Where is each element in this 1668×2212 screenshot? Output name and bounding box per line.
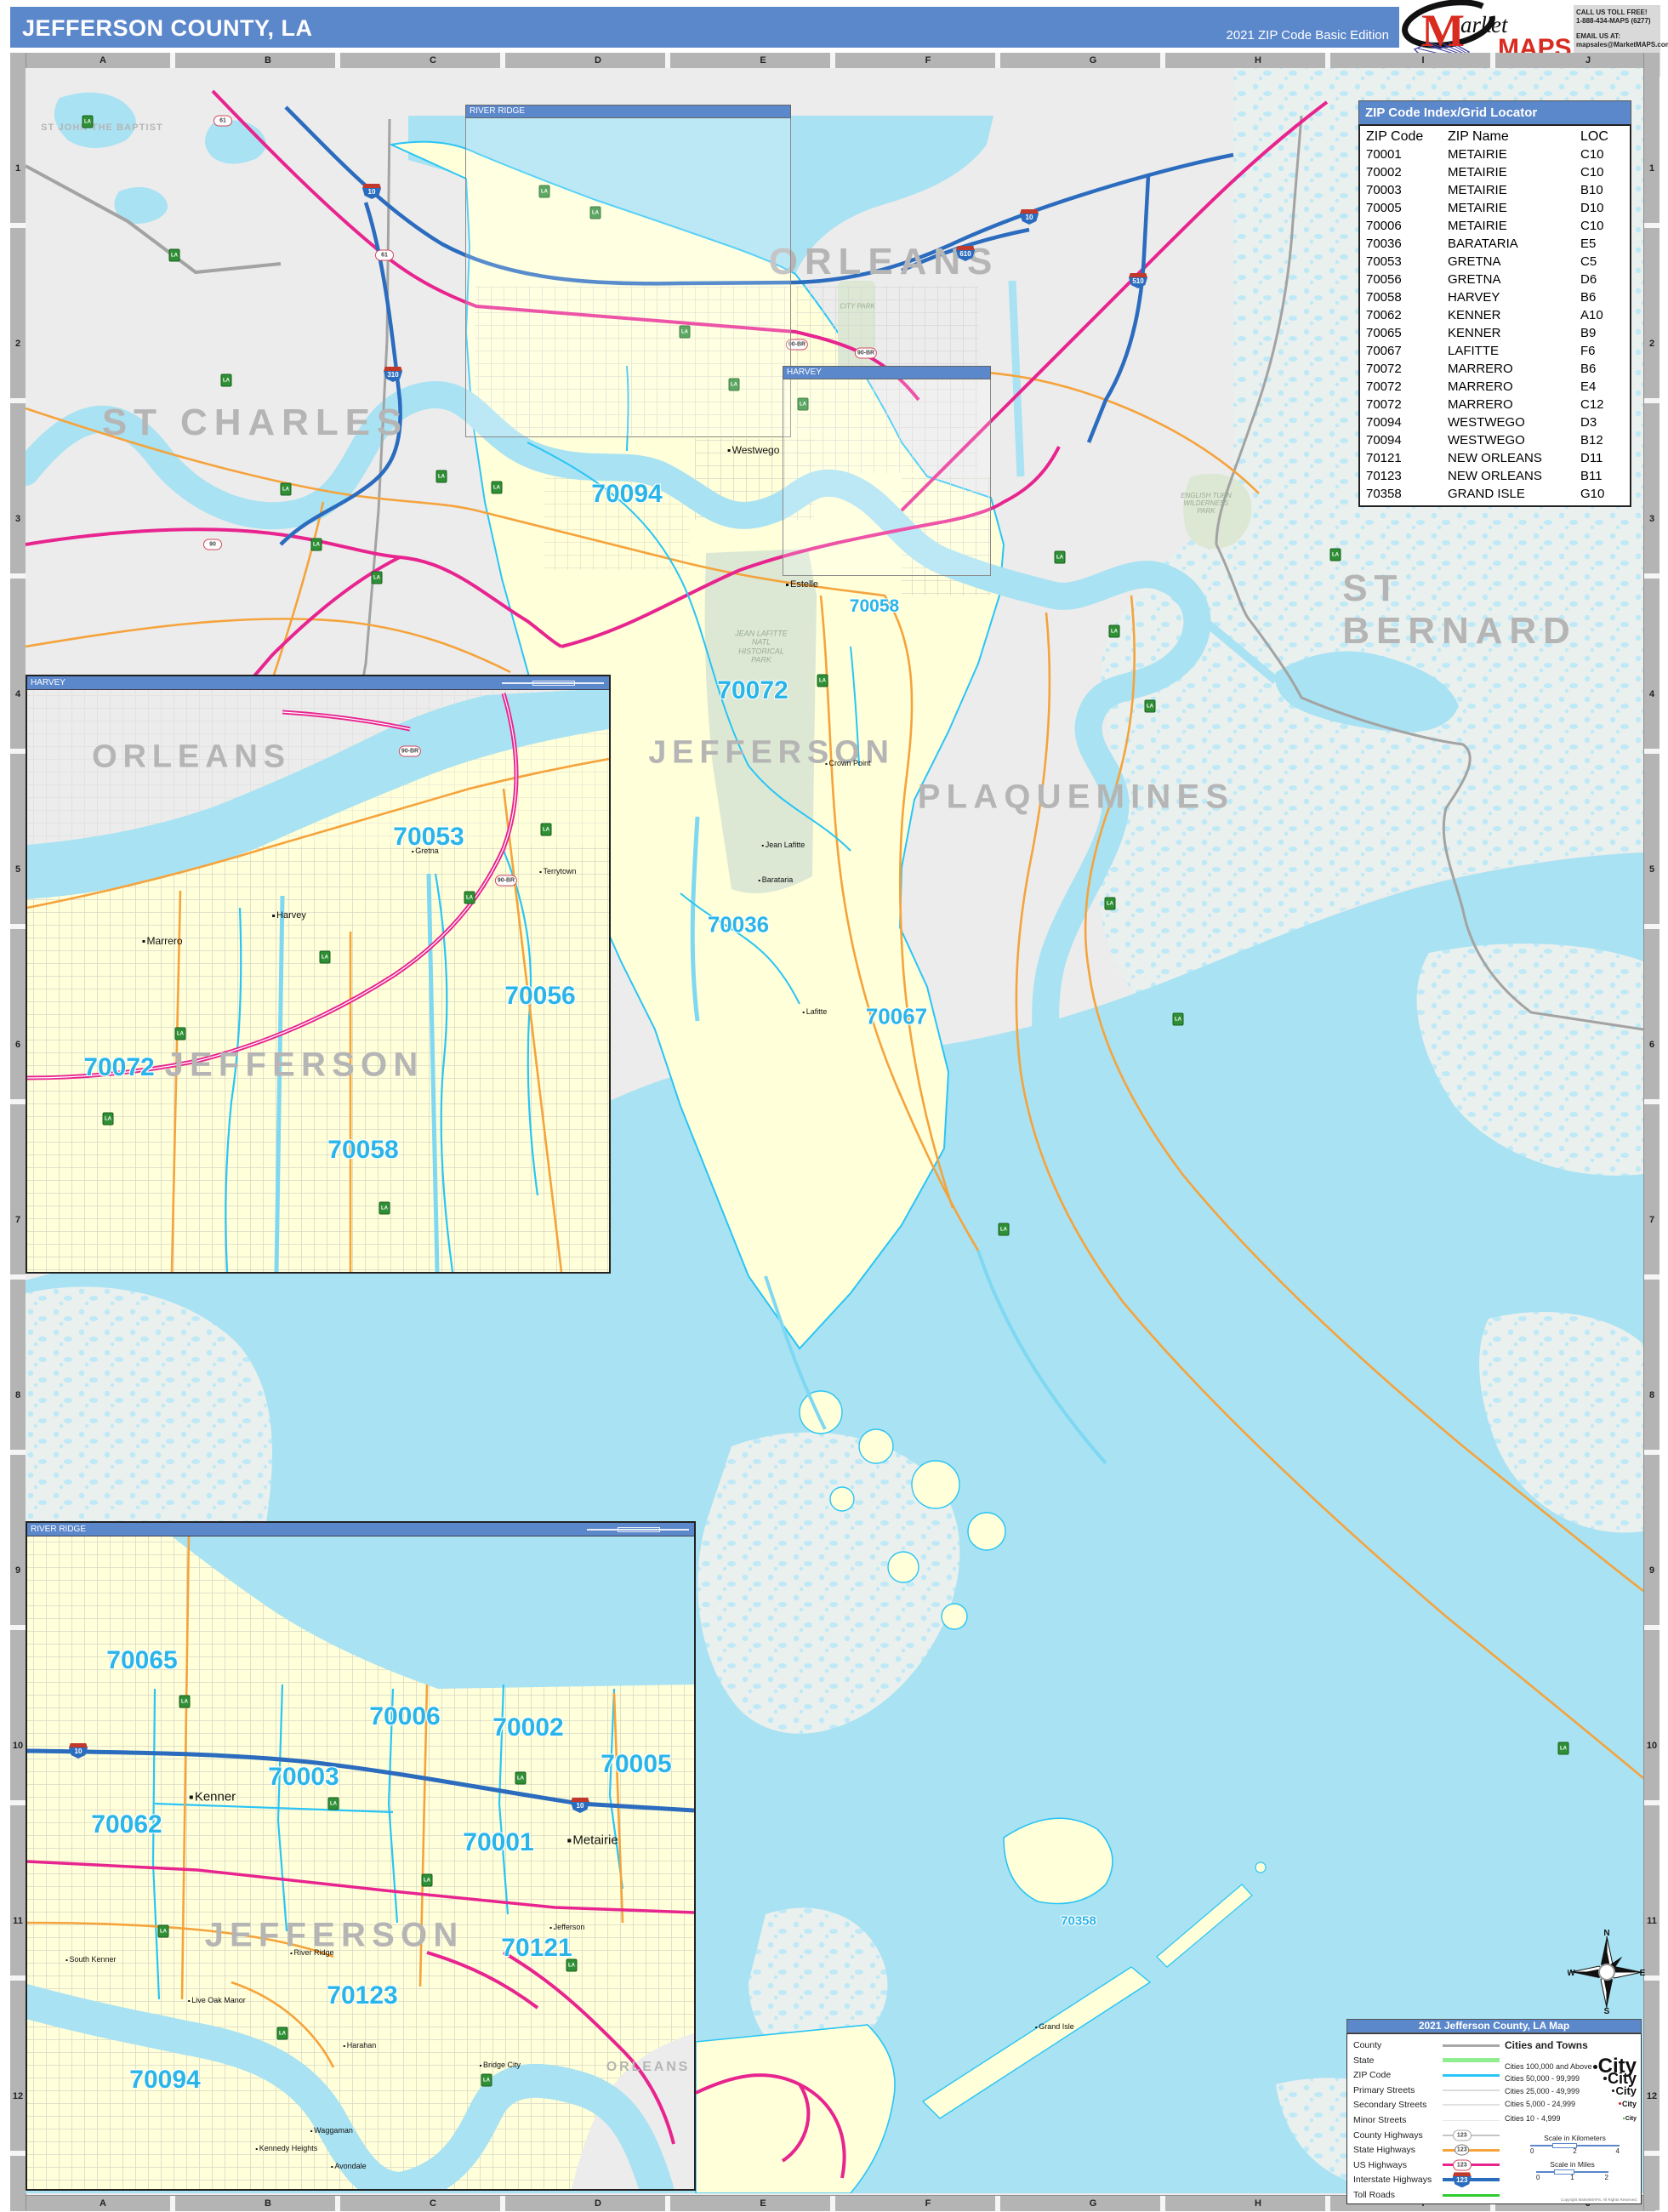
legend-city-label: Cities 25,000 - 49,999 [1505, 2087, 1580, 2095]
scale-ticks: 012 [1536, 2174, 1608, 2181]
grid-number-6: 6 [15, 1040, 20, 1050]
loc-cell: C10 [1580, 163, 1630, 181]
legend-row-label: Minor Streets [1353, 2115, 1443, 2125]
table-row: 70067LAFITTEF6 [1360, 342, 1630, 360]
grid-number-1: 1 [15, 163, 20, 174]
table-row: 70002METAIRIEC10 [1360, 163, 1630, 181]
legend-title: 2021 Jefferson County, LA Map [1346, 2019, 1642, 2033]
legend-swatch: 123 [1443, 2129, 1500, 2141]
loc-cell: C10 [1580, 217, 1630, 235]
name-cell: METAIRIE [1448, 145, 1580, 163]
grid-number-4: 4 [15, 689, 20, 699]
scale-bar [1536, 2169, 1608, 2174]
table-row: 70358GRAND ISLEG10 [1360, 485, 1630, 503]
loc-cell: E5 [1580, 235, 1630, 253]
scale-bar [1530, 2143, 1620, 2147]
compass-rose: N E S W [1568, 1930, 1646, 2015]
grid-number-4: 4 [1649, 689, 1654, 699]
name-cell: METAIRIE [1448, 217, 1580, 235]
table-row: 70062KENNERA10 [1360, 306, 1630, 324]
loc-cell: B12 [1580, 431, 1630, 449]
legend-row-label: US Highways [1353, 2160, 1443, 2170]
city-dot [1593, 2065, 1597, 2069]
legend-swatch [1443, 2099, 1500, 2111]
grid-letter-A: A [100, 2198, 106, 2209]
legend-body: Cities and Towns Scale in Kilometers024 … [1346, 2033, 1642, 2204]
legend-swatch-line [1443, 2164, 1500, 2166]
grid-letter-I: I [1421, 55, 1424, 66]
locator-box-title: RIVER RIDGE [465, 105, 791, 118]
grid-letter-A: A [100, 55, 106, 66]
zip-cell: 70067 [1366, 342, 1448, 360]
grid-number-11: 11 [1647, 1916, 1657, 1926]
table-row: 70121NEW ORLEANSD11 [1360, 449, 1630, 467]
zip-cell: 70072 [1366, 360, 1448, 378]
city-dot [1623, 2118, 1625, 2119]
legend-city-label: Cities 10 - 4,999 [1505, 2114, 1561, 2123]
legend-row-label: County [1353, 2040, 1443, 2050]
grid-letter-H: H [1255, 2198, 1261, 2209]
legend-swatch: 123 [1443, 2174, 1500, 2186]
table-row: 70003METAIRIEB10 [1360, 181, 1630, 199]
zip-index-col: ZIP Name [1448, 128, 1580, 145]
legend-swatch [1443, 2055, 1500, 2067]
grid-number-12: 12 [1647, 2091, 1657, 2101]
legend-fine-print: Copyright MarketMAPS. All Rights Reserve… [1561, 2198, 1637, 2202]
loc-cell: E4 [1580, 378, 1630, 396]
zip-cell: 70072 [1366, 378, 1448, 396]
legend-swatch-line [1443, 2149, 1500, 2152]
legend-swatch: 123 [1443, 2144, 1500, 2156]
zip-cell: 70001 [1366, 145, 1448, 163]
legend-city-label: Cities 50,000 - 99,999 [1505, 2074, 1580, 2083]
grid-letter-B: B [265, 2198, 271, 2209]
zip-cell: 70121 [1366, 449, 1448, 467]
city-dot [1619, 2102, 1621, 2105]
legend-row-us-highways: US Highways123 [1353, 2159, 1500, 2171]
zip-cell: 70006 [1366, 217, 1448, 235]
legend-row-label: Secondary Streets [1353, 2100, 1443, 2110]
grid-number-10: 10 [1647, 1741, 1657, 1751]
name-cell: GRETNA [1448, 253, 1580, 271]
name-cell: MARRERO [1448, 378, 1580, 396]
table-row: 70056GRETNAD6 [1360, 271, 1630, 288]
table-row: 70036BARATARIAE5 [1360, 235, 1630, 253]
legend-row-county: County [1353, 2039, 1500, 2051]
legend-row-label: Interstate Highways [1353, 2175, 1443, 2185]
name-cell: MARRERO [1448, 396, 1580, 413]
name-cell: METAIRIE [1448, 199, 1580, 217]
inset-harvey-title: HARVEY [27, 676, 609, 690]
locator-box-river-ridge: RIVER RIDGE [465, 105, 791, 437]
contact-call-1: CALL US TOLL FREE! [1576, 9, 1658, 17]
table-row: 70058HARVEYB6 [1360, 288, 1630, 306]
legend-swatch: 123 [1443, 2159, 1500, 2171]
contact-email-1: EMAIL US AT: [1576, 32, 1658, 41]
zip-cell: 70056 [1366, 271, 1448, 288]
grid-number-6: 6 [1649, 1040, 1654, 1050]
legend-row-zip-code: ZIP Code [1353, 2069, 1500, 2081]
legend-swatch-line [1443, 2194, 1500, 2197]
page-title: JEFFERSON COUNTY, LA [22, 15, 313, 42]
legend-swatch-line [1443, 2058, 1500, 2062]
grid-number-8: 8 [1649, 1390, 1654, 1400]
legend-row-label: Primary Streets [1353, 2085, 1443, 2095]
grid-letter-C: C [430, 55, 436, 66]
compass-e: E [1640, 1969, 1646, 1978]
scale-ticks: 024 [1530, 2147, 1620, 2155]
grid-number-5: 5 [15, 864, 20, 875]
zip-cell: 70058 [1366, 288, 1448, 306]
loc-cell: D6 [1580, 271, 1630, 288]
legend-swatch-line [1443, 2104, 1500, 2106]
legend-city-row: Cities 5,000 - 24,999City [1505, 2100, 1637, 2108]
 [1552, 2143, 1576, 2148]
loc-cell: B11 [1580, 467, 1630, 485]
map-poster-page: JEFFERSON COUNTY, LA 2021 ZIP Code Basic… [0, 0, 1668, 2212]
locator-box-title: HARVEY [783, 366, 991, 379]
grid-ruler-left: 123456789101112 [10, 53, 26, 2210]
inset-harvey-geography [27, 676, 609, 1272]
grid-number-2: 2 [15, 339, 20, 349]
grid-letter-E: E [760, 55, 766, 66]
zip-index-col: LOC [1580, 128, 1630, 145]
grid-letter-B: B [265, 55, 271, 66]
grid-number-1: 1 [1649, 163, 1654, 174]
legend-row-primary-streets: Primary Streets [1353, 2084, 1500, 2096]
legend-city-label: Cities 5,000 - 24,999 [1505, 2100, 1575, 2108]
legend-row-label: State [1353, 2055, 1443, 2066]
legend-row-secondary-streets: Secondary Streets [1353, 2099, 1500, 2111]
loc-cell: A10 [1580, 306, 1630, 324]
city-dot [1612, 2089, 1614, 2092]
zip-cell: 70123 [1366, 467, 1448, 485]
zip-index-col: ZIP Code [1366, 128, 1448, 145]
table-row: 70094WESTWEGOD3 [1360, 413, 1630, 431]
loc-cell: B6 [1580, 360, 1630, 378]
zip-index-table: ZIP Code Index/Grid Locator ZIP CodeZIP … [1358, 100, 1631, 507]
legend-row-label: County Highways [1353, 2130, 1443, 2141]
loc-cell: F6 [1580, 342, 1630, 360]
name-cell: NEW ORLEANS [1448, 467, 1580, 485]
name-cell: HARVEY [1448, 288, 1580, 306]
legend-city-sample: City [1612, 2084, 1637, 2097]
loc-cell: C5 [1580, 253, 1630, 271]
inset-harvey: HARVEY ORLEANSJEFFERSON70053700567007270… [26, 675, 611, 1274]
legend-city-row: Cities 10 - 4,999City [1505, 2114, 1637, 2123]
compass-s: S [1604, 2007, 1610, 2015]
name-cell: LAFITTE [1448, 342, 1580, 360]
zip-index-header: ZIP CodeZIP NameLOC [1360, 128, 1630, 145]
legend-swatch-line [1443, 2120, 1500, 2121]
legend-swatch-line [1443, 2135, 1500, 2136]
city-dot [1603, 2077, 1607, 2080]
grid-letter-C: C [430, 2198, 436, 2209]
table-row: 70072MARREROC12 [1360, 396, 1630, 413]
contact-email-2: mapsales@MarketMAPS.com [1576, 41, 1658, 49]
table-row: 70006METAIRIEC10 [1360, 217, 1630, 235]
zip-cell: 70062 [1366, 306, 1448, 324]
grid-number-3: 3 [15, 514, 20, 524]
 [1554, 2169, 1574, 2175]
name-cell: NEW ORLEANS [1448, 449, 1580, 467]
loc-cell: D3 [1580, 413, 1630, 431]
zip-cell: 70094 [1366, 431, 1448, 449]
table-row: 70053GRETNAC5 [1360, 253, 1630, 271]
table-row: 70065KENNERB9 [1360, 324, 1630, 342]
loc-cell: C10 [1580, 145, 1630, 163]
loc-cell: D11 [1580, 449, 1630, 467]
legend-city-sample: City [1623, 2116, 1637, 2122]
loc-cell: C12 [1580, 396, 1630, 413]
table-row: 70072MARREROB6 [1360, 360, 1630, 378]
grid-number-12: 12 [13, 2091, 23, 2101]
scale-title: Scale in Kilometers [1530, 2134, 1620, 2142]
inset-scale-bar [587, 1525, 689, 1533]
grid-letter-D: D [595, 55, 601, 66]
name-cell: METAIRIE [1448, 181, 1580, 199]
name-cell: GRAND ISLE [1448, 485, 1580, 503]
legend-cities-title: Cities and Towns [1505, 2039, 1588, 2051]
legend-row-label: State Highways [1353, 2145, 1443, 2155]
grid-ruler-top: ABCDEFGHIJ [10, 53, 1659, 69]
inset-river-ridge-title: RIVER RIDGE [27, 1523, 694, 1536]
legend-swatch [1443, 2084, 1500, 2096]
contact-call-2: 1-888-434-MAPS (6277) [1576, 17, 1658, 26]
loc-cell: B6 [1580, 288, 1630, 306]
grid-number-9: 9 [1649, 1565, 1654, 1576]
grid-letter-F: F [925, 2198, 931, 2209]
grid-number-5: 5 [1649, 864, 1654, 875]
zip-index-title: ZIP Code Index/Grid Locator [1358, 100, 1631, 124]
legend-city-sample: City [1619, 2100, 1637, 2108]
legend: 2021 Jefferson County, LA Map Cities and… [1346, 2019, 1642, 2201]
grid-number-3: 3 [1649, 514, 1654, 524]
legend-row-toll-roads: Toll Roads [1353, 2189, 1500, 2201]
grid-letter-J: J [1585, 55, 1591, 66]
zip-cell: 70358 [1366, 485, 1448, 503]
zip-cell: 70094 [1366, 413, 1448, 431]
header-bar: JEFFERSON COUNTY, LA 2021 ZIP Code Basic… [10, 7, 1399, 48]
name-cell: KENNER [1448, 306, 1580, 324]
zip-cell: 70072 [1366, 396, 1448, 413]
legend-swatch-line [1443, 2044, 1500, 2047]
edition-label: 2021 ZIP Code Basic Edition [1226, 28, 1389, 43]
name-cell: KENNER [1448, 324, 1580, 342]
grid-ruler-right: 123456789101112 [1643, 53, 1659, 2210]
loc-cell: B9 [1580, 324, 1630, 342]
locator-box-harvey: HARVEY [783, 366, 991, 576]
name-cell: MARRERO [1448, 360, 1580, 378]
legend-swatch-line [1443, 2089, 1500, 2091]
compass-w: W [1568, 1969, 1575, 1978]
loc-cell: B10 [1580, 181, 1630, 199]
zip-cell: 70003 [1366, 181, 1448, 199]
grid-number-11: 11 [13, 1916, 23, 1926]
legend-swatch-line [1443, 2178, 1500, 2181]
legend-row-state: State [1353, 2055, 1500, 2067]
compass-n: N [1603, 1930, 1609, 1938]
grid-letter-H: H [1255, 55, 1261, 66]
legend-swatch [1443, 2069, 1500, 2081]
table-row: 70005METAIRIED10 [1360, 199, 1630, 217]
grid-number-10: 10 [13, 1741, 23, 1751]
grid-letter-D: D [595, 2198, 601, 2209]
grid-number-7: 7 [15, 1215, 20, 1225]
grid-letter-E: E [760, 2198, 766, 2209]
zip-cell: 70005 [1366, 199, 1448, 217]
grid-number-9: 9 [15, 1565, 20, 1576]
inset-scale-bar [502, 679, 604, 687]
legend-row-county-highways: County Highways123 [1353, 2129, 1500, 2141]
grid-letter-G: G [1090, 2198, 1097, 2209]
grid-number-7: 7 [1649, 1215, 1654, 1225]
loc-cell: G10 [1580, 485, 1630, 503]
table-row: 70072MARREROE4 [1360, 378, 1630, 396]
grid-number-8: 8 [15, 1390, 20, 1400]
legend-row-state-highways: State Highways123 [1353, 2144, 1500, 2156]
table-row: 70123NEW ORLEANSB11 [1360, 467, 1630, 485]
name-cell: BARATARIA [1448, 235, 1580, 253]
compass-star [1571, 1936, 1642, 2008]
grid-number-2: 2 [1649, 339, 1654, 349]
name-cell: WESTWEGO [1448, 413, 1580, 431]
zip-index-body: ZIP CodeZIP NameLOC70001METAIRIEC1070002… [1358, 124, 1631, 507]
legend-city-row: Cities 25,000 - 49,999City [1505, 2084, 1637, 2097]
grid-letter-F: F [925, 55, 931, 66]
legend-row-label: ZIP Code [1353, 2070, 1443, 2080]
legend-swatch [1443, 2114, 1500, 2126]
scale-title: Scale in Miles [1536, 2160, 1608, 2169]
scale-kilometers: Scale in Kilometers024 [1530, 2134, 1620, 2155]
grid-letter-G: G [1090, 55, 1097, 66]
legend-row-minor-streets: Minor Streets [1353, 2114, 1500, 2126]
name-cell: GRETNA [1448, 271, 1580, 288]
inset-river-ridge-geography [27, 1523, 694, 2189]
inset-river-ridge: RIVER RIDGE 7006570006700027000570003700… [26, 1521, 696, 2191]
legend-swatch [1443, 2039, 1500, 2051]
legend-row-interstate-highways: Interstate Highways123 [1353, 2174, 1500, 2186]
table-row: 70001METAIRIEC10 [1360, 145, 1630, 163]
name-cell: METAIRIE [1448, 163, 1580, 181]
legend-swatch [1443, 2189, 1500, 2201]
zip-cell: 70002 [1366, 163, 1448, 181]
legend-row-label: Toll Roads [1353, 2190, 1443, 2200]
scale-miles: Scale in Miles012 [1536, 2160, 1608, 2181]
zip-cell: 70065 [1366, 324, 1448, 342]
zip-cell: 70053 [1366, 253, 1448, 271]
loc-cell: D10 [1580, 199, 1630, 217]
legend-swatch-line [1443, 2074, 1500, 2077]
table-row: 70094WESTWEGOB12 [1360, 431, 1630, 449]
name-cell: WESTWEGO [1448, 431, 1580, 449]
svg-text:M: M [1421, 5, 1465, 56]
zip-cell: 70036 [1366, 235, 1448, 253]
